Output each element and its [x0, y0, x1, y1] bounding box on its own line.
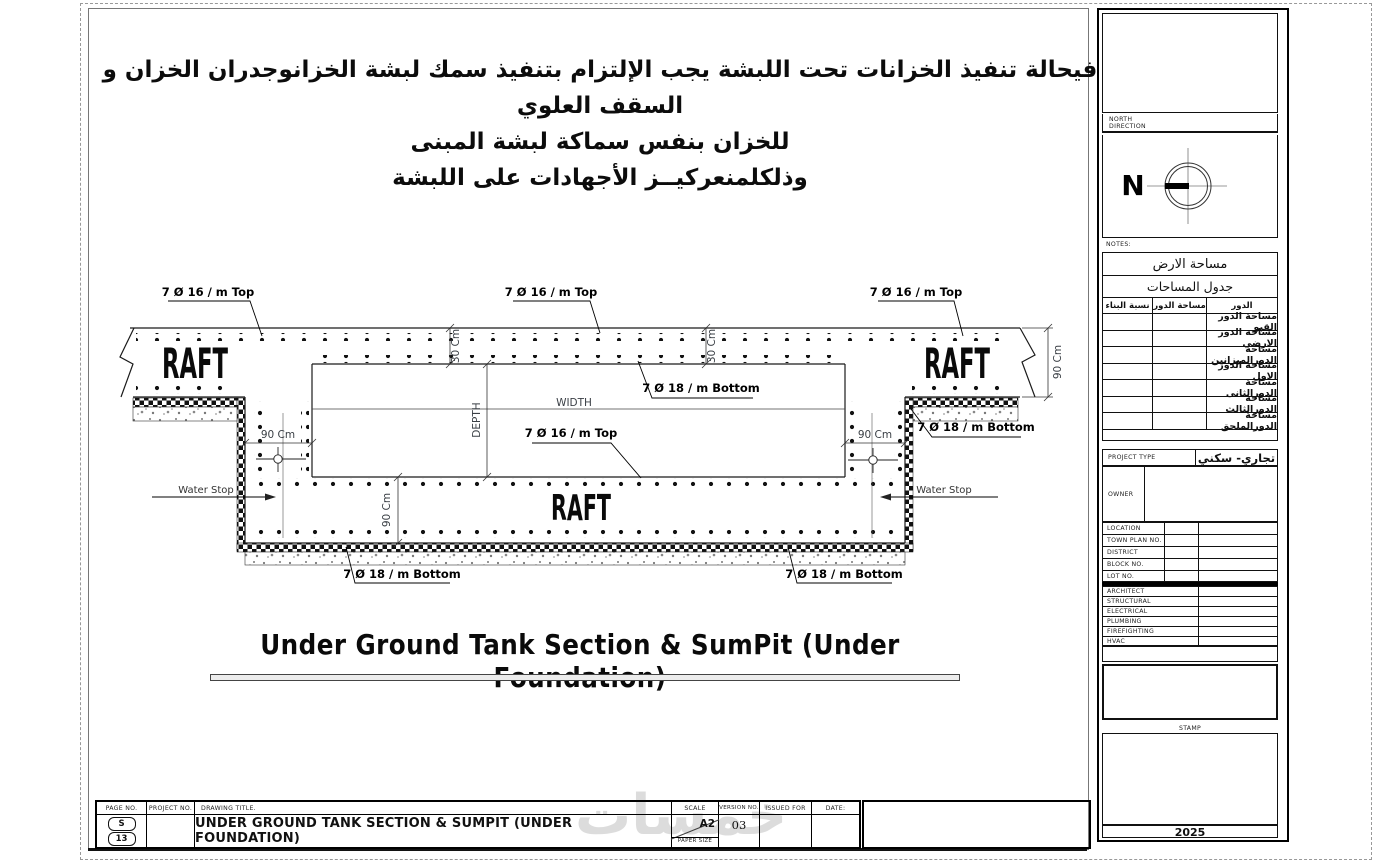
location-info-rows: LOCATION TOWN PLAN NO. DISTRICT BLOCK NO…	[1102, 522, 1278, 582]
info-label: TOWN PLAN NO.	[1103, 535, 1165, 546]
discipline-row: FIREFIGHTING	[1103, 627, 1277, 637]
project-type-label: PROJECT TYPE	[1103, 450, 1195, 465]
north-label-line2: DIRECTION	[1109, 123, 1277, 130]
watermark-text: خمسات	[575, 783, 787, 848]
project-no-value	[147, 815, 194, 847]
info-label: BLOCK NO.	[1103, 559, 1165, 570]
year-label: 2025	[1102, 825, 1278, 838]
date-value	[812, 815, 859, 847]
water-stop-arrow-right	[880, 494, 891, 501]
discipline-label: ARCHITECT	[1103, 587, 1199, 596]
page-no-column: PAGE NO. S 13	[97, 802, 147, 847]
info-label: DISTRICT	[1103, 547, 1165, 558]
title-block-sidebar: NORTH DIRECTION N NOTES: مساحة الارض جدو…	[1097, 8, 1289, 842]
north-label-line1: NORTH	[1109, 116, 1277, 123]
north-compass-box: N	[1102, 135, 1278, 238]
info-row: TOWN PLAN NO.	[1103, 535, 1277, 547]
info-label: LOT NO.	[1103, 571, 1165, 582]
dim-wall-90cm-right: 90 Cm	[858, 429, 892, 441]
owner-box: OWNER	[1102, 466, 1278, 522]
label-rebar-bottom-middle: 7 Ø 18 / m Bottom	[642, 381, 760, 395]
break-mark-right	[1020, 328, 1035, 397]
water-stop-label-right: Water Stop	[916, 485, 971, 496]
discipline-label: PLUMBING	[1103, 617, 1199, 626]
break-mark-left	[120, 328, 134, 397]
raft-label-bottom: RAFT	[551, 488, 611, 529]
label-rebar-top-sump: 7 Ø 16 / m Top	[525, 426, 617, 440]
empty-row	[1102, 646, 1278, 662]
info-row: DISTRICT	[1103, 547, 1277, 559]
compass-n-letter: N	[1121, 169, 1144, 202]
north-direction-label: NORTH DIRECTION	[1102, 114, 1278, 133]
page-no-label: PAGE NO.	[97, 802, 146, 815]
areas-table: مساحة الارض جدول المساحات نسبة البناء مس…	[1102, 252, 1278, 441]
label-rebar-bottom-left: 7 Ø 18 / m Bottom	[343, 567, 461, 581]
date-label: DATE:	[812, 802, 859, 815]
drawing-sheet: فيحالة تنفيذ الخزانات تحت اللبشة يجب الإ…	[0, 0, 1380, 865]
col-header-area: مساحة الدور	[1153, 298, 1207, 313]
label-rebar-bottom-right: 7 Ø 18 / m Bottom	[785, 567, 903, 581]
info-label: LOCATION	[1103, 523, 1165, 534]
dim-raft-90cm-right: 90 Cm	[1052, 345, 1064, 379]
label-rebar-top-middle: 7 Ø 16 / m Top	[505, 285, 597, 299]
table-row: مساحة الدورالملحق	[1103, 413, 1277, 430]
raft-label-left: RAFT	[162, 339, 228, 388]
project-no-label: PROJECT NO.	[147, 802, 194, 815]
date-column: DATE:	[812, 802, 859, 847]
label-rebar-top-right: 7 Ø 16 / m Top	[870, 285, 962, 299]
project-no-column: PROJECT NO.	[147, 802, 195, 847]
discipline-row: PLUMBING	[1103, 617, 1277, 627]
dim-slab-90cm-bottom: 90 Cm	[381, 493, 393, 527]
compass-needle	[1165, 183, 1189, 189]
drawing-main-title: Under Ground Tank Section & SumPit (Unde…	[228, 628, 932, 694]
water-stop-arrow-left	[265, 494, 276, 501]
discipline-row: ARCHITECT	[1103, 587, 1277, 597]
label-rebar-top-left: 7 Ø 16 / m Top	[162, 285, 254, 299]
dim-slab-30cm-right: 30 Cm	[706, 329, 718, 363]
note-line-2: للخزان بنفس سماكة لبشة المبنى	[100, 124, 1100, 160]
project-type-value: تجاري- سكني	[1195, 450, 1277, 465]
floor-label: مساحة الدورالملحق	[1207, 413, 1277, 429]
tank-section-drawing: 90 Cm 30 Cm 30 Cm DEPTH WIDTH 90 Cm 90 C…	[80, 262, 1090, 600]
notes-label: NOTES:	[1102, 238, 1278, 252]
raft-label-right: RAFT	[924, 339, 990, 388]
land-area-row: مساحة الارض	[1103, 253, 1277, 276]
col-header-ratio: نسبة البناء	[1103, 298, 1153, 313]
discipline-row: HVAC	[1103, 637, 1277, 646]
discipline-label: FIREFIGHTING	[1103, 627, 1199, 636]
discipline-row: ELECTRICAL	[1103, 607, 1277, 617]
dim-slab-30cm-left: 30 Cm	[450, 329, 462, 363]
title-underline-bar	[210, 674, 960, 681]
discipline-row: STRUCTURAL	[1103, 597, 1277, 607]
project-type-row: PROJECT TYPE تجاري- سكني	[1102, 449, 1278, 466]
areas-table-title: جدول المساحات	[1103, 276, 1277, 298]
info-row: LOT NO.	[1103, 571, 1277, 582]
stamp-box	[1102, 733, 1278, 825]
logo-box	[1102, 13, 1278, 113]
water-stop-label-left: Water Stop	[178, 485, 233, 496]
leader-lines	[152, 301, 1021, 583]
discipline-label: ELECTRICAL	[1103, 607, 1199, 616]
north-compass: N	[1103, 135, 1277, 235]
general-notes: فيحالة تنفيذ الخزانات تحت اللبشة يجب الإ…	[100, 52, 1100, 196]
discipline-label: STRUCTURAL	[1103, 597, 1199, 606]
discipline-label: HVAC	[1103, 637, 1199, 646]
info-row: LOCATION	[1103, 523, 1277, 535]
owner-label: OWNER	[1103, 467, 1145, 521]
label-rebar-bottom-right-raft: 7 Ø 18 / m Bottom	[917, 420, 1035, 434]
page-letter-badge: S	[108, 817, 136, 831]
dim-wall-90cm-left: 90 Cm	[261, 429, 295, 441]
consultant-box	[1102, 664, 1278, 720]
water-stop-symbols	[256, 447, 898, 473]
note-line-1: فيحالة تنفيذ الخزانات تحت اللبشة يجب الإ…	[100, 52, 1100, 124]
stamp-label: STAMP	[1102, 722, 1278, 733]
note-line-3: وذلكلمنعركيــز الأجهادات على اللبشة	[100, 160, 1100, 196]
dim-width: WIDTH	[556, 397, 592, 409]
dim-depth: DEPTH	[471, 402, 483, 437]
owner-value	[1145, 467, 1277, 521]
page-number-badge: 13	[108, 832, 136, 846]
signature-box	[862, 800, 1091, 849]
discipline-rows: ARCHITECT STRUCTURAL ELECTRICAL PLUMBING…	[1102, 586, 1278, 646]
info-row: BLOCK NO.	[1103, 559, 1277, 571]
